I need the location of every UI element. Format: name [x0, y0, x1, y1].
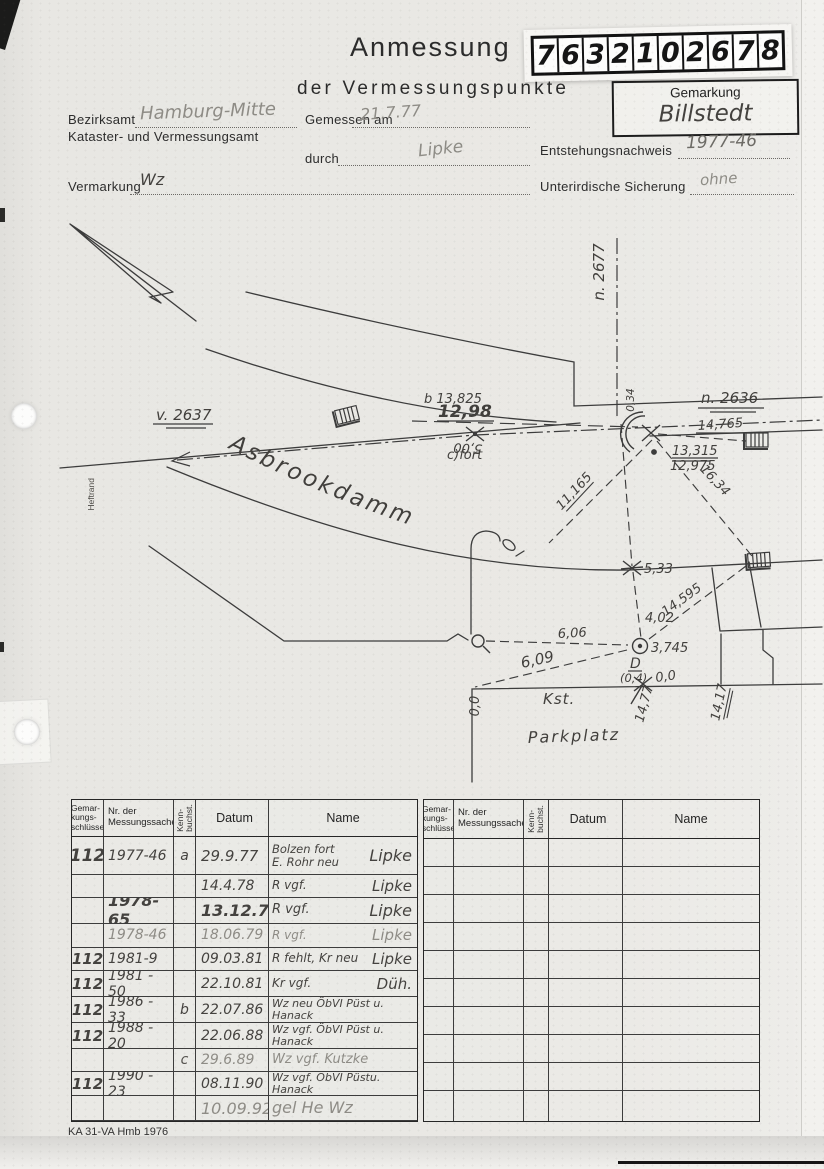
sketch-axis-lines	[177, 238, 822, 460]
sketch-label-1298: 12,98	[438, 402, 492, 422]
field-line	[130, 194, 530, 195]
cell-kennbuchstabe	[174, 875, 196, 897]
sketch-label-14595: 14,595	[659, 581, 705, 620]
sketch-label-14765: 14,765	[697, 416, 743, 434]
sketch-label-606: 6,06	[557, 625, 587, 641]
cell-kennbuchstabe: b	[174, 997, 196, 1022]
header-kennbuchstabe-text: Kenn- buchst.	[175, 804, 193, 832]
sketch-label-n2636: n. 2636	[701, 389, 758, 407]
boundary-polyline	[149, 546, 468, 641]
point-d-circle	[633, 639, 648, 654]
durch-value: Lipke	[417, 137, 464, 162]
sketch-label-00-left: 0,0	[468, 696, 483, 717]
cell-messungssache: 1978-46	[104, 924, 174, 947]
cell-gemarkung	[72, 924, 104, 947]
underline-13315	[672, 458, 718, 461]
name-action: R vgf.	[272, 903, 310, 917]
boundary-stones	[333, 406, 771, 570]
scanned-survey-form: Anmessung der Vermessungspunkte 7 6 3 2 …	[0, 0, 824, 1169]
cell-datum: 09.03.81	[196, 948, 269, 971]
cell-messungssache: 1978-65	[104, 898, 174, 923]
sketch-label-street-name: Asbrookdamm	[224, 429, 419, 531]
meas-line-1298	[412, 421, 638, 427]
stone-icon	[333, 406, 360, 427]
gemarkung-label: Gemarkung	[614, 84, 797, 101]
cell-name: Wz vgf. ÖbVI Püst u. Hanack	[269, 1023, 417, 1048]
sketch-label-n2677: n. 2677	[590, 243, 608, 301]
cell-name: R vgf.Lipke	[269, 875, 417, 897]
name-action: Wz vgf. Kutzke	[272, 1053, 368, 1067]
sketch-label-point-d-offset: (0,4)	[620, 671, 647, 685]
cell-messungssache	[104, 875, 174, 897]
table-header-row: Gemar- kungs- schlüssel Nr. der Messungs…	[424, 800, 759, 839]
table-row: 14.4.78 R vgf.Lipke	[72, 875, 417, 898]
cell-kennbuchstabe	[174, 898, 196, 923]
sketch-label-11165-group: 11,165	[553, 470, 595, 514]
name-action: Wz vgf. ÖbVI Püst u. Hanack	[272, 1024, 412, 1048]
table-row: 10.09.92 gel He Wz	[72, 1096, 417, 1121]
sketch-dashed-lines	[412, 421, 752, 687]
name-action: R vgf.	[272, 879, 307, 892]
cell-datum: 22.07.86	[196, 997, 269, 1022]
cell-datum: 29.6.89	[196, 1049, 269, 1071]
cell-kennbuchstabe	[174, 1072, 196, 1095]
cell-name: Wz vgf. ÖbVI Püstu. Hanack	[269, 1072, 417, 1095]
cell-name: R vgf.Lipke	[269, 898, 417, 923]
entstehungsnachweis-value: 1977-46	[686, 131, 758, 153]
stone-icon	[744, 433, 768, 449]
measurement-table-right: Gemar- kungs- schlüssel Nr. der Messungs…	[423, 799, 760, 1122]
street-centerline	[177, 420, 822, 460]
scan-bottom-band	[0, 1136, 824, 1169]
point-d-dot	[639, 645, 642, 648]
field-line	[338, 165, 530, 166]
digit-cell: 7	[534, 38, 560, 73]
gemarkung-value: Billstedt	[614, 100, 797, 128]
meas-line-14595	[649, 563, 750, 639]
name-action: Wz vgf. ÖbVI Püstu. Hanack	[272, 1072, 412, 1095]
parking-boundary	[472, 684, 822, 782]
field-line	[690, 194, 794, 195]
sketch-label-1477: 14,77	[633, 683, 657, 724]
cell-kennbuchstabe: c	[174, 1049, 196, 1071]
digit-cell: 6	[559, 38, 585, 73]
sketch-label-1417: 14,17	[708, 682, 731, 722]
sketch-label-500: 5,00	[453, 439, 483, 455]
label-underlines	[153, 408, 764, 671]
sketch-label-b13825: b 13,825	[424, 392, 482, 407]
cell-datum: 18.06.79	[196, 924, 269, 947]
name-action: R vgf.	[272, 929, 307, 942]
name-action: Bolzen fort E. Rohr neu	[272, 843, 339, 868]
field-line	[352, 127, 530, 128]
cell-name: R fehlt, Kr neuLipke	[269, 948, 417, 971]
meas-line-vertical2	[633, 572, 641, 638]
header-nr-der-messungssache: Nr. der Messungssache	[454, 800, 524, 838]
road-south-curve	[167, 467, 822, 570]
point-c-dot	[474, 433, 477, 436]
sketch-label-533: 5,33	[644, 562, 673, 577]
table-row: 112 1981 - 50 22.10.81 Kr vgf.Düh.	[72, 971, 417, 997]
header-datum: Datum	[549, 800, 623, 838]
sketch-label-609: 6,09	[519, 647, 555, 672]
header-kennbuchstabe: Kenn- buchst.	[524, 800, 549, 838]
sketch-label-3745: 3,745	[651, 641, 688, 656]
cell-messungssache	[104, 1096, 174, 1120]
table-row: 112 1986 - 33 b 22.07.86 Wz neu ÖbVI Püs…	[72, 997, 417, 1023]
header-kennbuchstabe: Kenn- buchst.	[174, 800, 196, 836]
scan-edge-strip	[801, 0, 824, 1169]
sketch-label-1634: 16,34	[696, 462, 732, 499]
stray-dash	[516, 551, 524, 556]
underline-1417	[724, 688, 731, 719]
header-datum: Datum	[196, 800, 269, 836]
table-row	[424, 923, 759, 951]
cell-datum: 13.12.78	[196, 898, 269, 923]
name-surveyor: Lipke	[369, 846, 414, 865]
vermarkung-value: Wz	[140, 170, 164, 189]
cell-kennbuchstabe	[174, 1023, 196, 1048]
form-id-footer: KA 31-VA Hmb 1976	[68, 1126, 168, 1138]
table-header-row: Gemar- kungs- schlüssel Nr. der Messungs…	[72, 800, 417, 837]
meas-line-11165	[549, 440, 652, 543]
gemarkung-box: Gemarkung Billstedt	[612, 79, 800, 137]
meas-line-609	[475, 650, 627, 687]
cell-messungssache: 1977-46	[104, 837, 174, 874]
cell-datum: 22.06.88	[196, 1023, 269, 1048]
name-surveyor: Lipke	[372, 950, 414, 968]
table-row	[424, 867, 759, 895]
header-gemarkungsschluessel: Gemar- kungs- schlüssel	[72, 800, 104, 836]
meas-line-14765	[658, 434, 746, 441]
name-surveyor: Lipke	[372, 877, 414, 895]
table-row	[424, 1035, 759, 1063]
sketch-label-parkplatz: Parkplatz	[527, 725, 620, 747]
digit-cell: 1	[634, 36, 660, 71]
cell-gemarkung	[72, 1049, 104, 1071]
sketch-label-034: 0,34	[625, 388, 637, 411]
header-nr-der-messungssache: Nr. der Messungssache	[104, 800, 174, 836]
meas-line-606	[486, 641, 628, 645]
digit-cell: 3	[584, 37, 610, 72]
cell-messungssache	[104, 1049, 174, 1071]
table-row: c 29.6.89 Wz vgf. Kutzke	[72, 1049, 417, 1072]
road-line-right	[650, 430, 822, 436]
sketch-label-402: 4,02	[645, 611, 674, 626]
cell-name: Bolzen fort E. Rohr neuLipke	[269, 837, 417, 874]
table-row	[424, 895, 759, 923]
sketch-label-point-d: D	[630, 656, 641, 672]
vermarkung-label: Vermarkung	[68, 179, 141, 194]
road-line-left	[60, 423, 580, 468]
cell-name: Kr vgf.Düh.	[269, 971, 417, 996]
entstehungsnachweis-label: Entstehungsnachweis	[540, 143, 672, 158]
table-row	[424, 979, 759, 1007]
amt-label: Kataster- und Vermessungsamt	[68, 129, 259, 144]
scan-edge-artifact	[0, 642, 4, 652]
street-name-textpath: Asbrookdamm	[224, 429, 419, 531]
hook-shape	[471, 531, 500, 634]
cell-datum: 29.9.77	[196, 837, 269, 874]
cell-datum: 08.11.90	[196, 1072, 269, 1095]
cell-messungssache: 1990 - 23	[104, 1072, 174, 1095]
meas-line-vertical	[621, 424, 632, 566]
name-surveyor: Lipke	[372, 926, 414, 944]
sketch-label-00-right: 0,0	[654, 668, 677, 686]
cell-kennbuchstabe	[174, 948, 196, 971]
unterirdische-sicherung-label: Unterirdische Sicherung	[540, 179, 686, 194]
cell-datum: 14.4.78	[196, 875, 269, 897]
name-action: Kr vgf.	[272, 977, 311, 990]
digit-cell: 0	[659, 35, 685, 70]
name-action: gel He Wz	[272, 1099, 353, 1117]
bezirksamt-value: Hamburg-Mitte	[140, 99, 277, 125]
junction-arcs	[621, 412, 645, 452]
table-row	[424, 1007, 759, 1035]
sketch-label-11165: 11,165	[553, 470, 595, 514]
centerline-arrowhead	[172, 452, 190, 466]
point-number-digit-strip: 7 6 3 2 1 0 2 6 7 8	[531, 30, 786, 76]
junction-dot	[652, 450, 656, 454]
table-row	[424, 1063, 759, 1091]
cell-kennbuchstabe: a	[174, 837, 196, 874]
road-edge-lower-curve	[206, 349, 556, 422]
bezirksamt-label: Bezirksamt	[68, 112, 135, 127]
header-name: Name	[623, 800, 759, 838]
table-row: 1978-65 13.12.78 R vgf.Lipke	[72, 898, 417, 924]
cell-gemarkung: 112	[72, 837, 104, 874]
cell-messungssache: 1981 - 50	[104, 971, 174, 996]
point-00-cross	[631, 677, 652, 704]
cell-gemarkung: 112	[72, 1072, 104, 1095]
punch-hole	[14, 719, 40, 745]
heftrand-margin-label: Heftrand	[86, 478, 96, 518]
header-kennbuchstabe-text: Kenn- buchst.	[527, 805, 545, 833]
cell-kennbuchstabe	[174, 1096, 196, 1120]
sketch-label-point-c: c)fort	[447, 448, 483, 463]
cell-name: Wz neu ÖbVI Püst u. Hanack	[269, 997, 417, 1022]
header-gemarkungsschluessel: Gemar- kungs- schlüssel	[424, 800, 454, 838]
sketch-label-kst: Kst.	[543, 690, 575, 708]
scan-edge-artifact	[0, 0, 22, 50]
corner-circle-tail	[483, 646, 490, 653]
point-number-sticker: 7 6 3 2 1 0 2 6 7 8	[523, 24, 792, 82]
scan-edge-artifact	[0, 208, 5, 222]
page-title: Anmessung	[350, 32, 511, 63]
meas-line-1634	[657, 441, 752, 556]
cell-messungssache: 1981-9	[104, 948, 174, 971]
sketch-solid-lines	[60, 224, 822, 782]
punch-hole	[11, 403, 37, 429]
corner-circle-point	[472, 635, 484, 647]
stone-icon	[746, 552, 771, 570]
small-blob	[501, 538, 517, 553]
cell-gemarkung: 112	[72, 971, 104, 996]
underline-11165	[566, 482, 593, 511]
cell-kennbuchstabe	[174, 971, 196, 996]
digit-cell: 7	[734, 34, 760, 69]
cell-name: R vgf.Lipke	[269, 924, 417, 947]
digit-cell: 8	[759, 33, 783, 68]
table-row: 112 1981-9 09.03.81 R fehlt, Kr neuLipke	[72, 948, 417, 972]
cell-datum: 22.10.81	[196, 971, 269, 996]
cell-gemarkung: 112	[72, 997, 104, 1022]
sketch-label-12975: 12,975	[670, 459, 716, 474]
underline-1417b	[727, 691, 733, 718]
underline-n2636	[698, 408, 764, 412]
point-symbols	[466, 412, 660, 704]
table-row: 112 1990 - 23 08.11.90 Wz vgf. ÖbVI Püst…	[72, 1072, 417, 1096]
durch-label: durch	[305, 151, 339, 166]
cell-messungssache: 1988 - 20	[104, 1023, 174, 1048]
field-line	[135, 127, 297, 128]
table-row	[424, 1091, 759, 1121]
digit-cell: 2	[684, 35, 710, 70]
unterirdische-sicherung-value: ohne	[699, 169, 738, 190]
scan-black-line	[618, 1161, 824, 1164]
name-action: Wz neu ÖbVI Püst u. Hanack	[272, 998, 412, 1022]
cell-gemarkung	[72, 898, 104, 923]
table-row	[424, 839, 759, 867]
sketch-label-13315: 13,315	[672, 444, 718, 459]
measurement-table-left: Gemar- kungs- schlüssel Nr. der Messungs…	[71, 799, 418, 1122]
header-name: Name	[269, 800, 417, 836]
cell-name: Wz vgf. Kutzke	[269, 1049, 417, 1071]
table-row: 112 1977-46 a 29.9.77 Bolzen fort E. Roh…	[72, 837, 417, 875]
name-action: R fehlt, Kr neu	[272, 952, 358, 965]
cell-kennbuchstabe	[174, 924, 196, 947]
point-c-cross	[466, 427, 484, 441]
sketch-label-1417-group: 14,17	[708, 682, 733, 723]
road-edge-upper	[246, 292, 822, 406]
cell-gemarkung: 112	[72, 948, 104, 971]
cell-gemarkung: 112	[72, 1023, 104, 1048]
name-surveyor: Düh.	[377, 975, 414, 993]
digit-cell: 6	[709, 34, 735, 69]
table-row: 1978-46 18.06.79 R vgf.Lipke	[72, 924, 417, 948]
underline-v2637	[153, 424, 213, 428]
table-row: 112 1988 - 20 22.06.88 Wz vgf. ÖbVI Püst…	[72, 1023, 417, 1049]
table-row	[424, 951, 759, 979]
cell-messungssache: 1986 - 33	[104, 997, 174, 1022]
name-surveyor: Lipke	[369, 901, 414, 920]
gemessen-am-value: 21.7.77	[359, 101, 421, 124]
sketch-labels: v. 2637 n. 2677 n. 2636 Asbrookdamm b 13…	[156, 243, 758, 747]
field-line	[678, 158, 790, 159]
digit-cell: 2	[609, 37, 635, 72]
cell-gemarkung	[72, 1096, 104, 1120]
point-533-star	[621, 561, 643, 575]
cell-name: gel He Wz	[269, 1096, 417, 1120]
cell-gemarkung	[72, 875, 104, 897]
cell-datum: 10.09.92	[196, 1096, 269, 1120]
junction-cross	[642, 425, 660, 441]
north-arrow	[70, 224, 196, 321]
sketch-label-v2637: v. 2637	[156, 406, 212, 424]
